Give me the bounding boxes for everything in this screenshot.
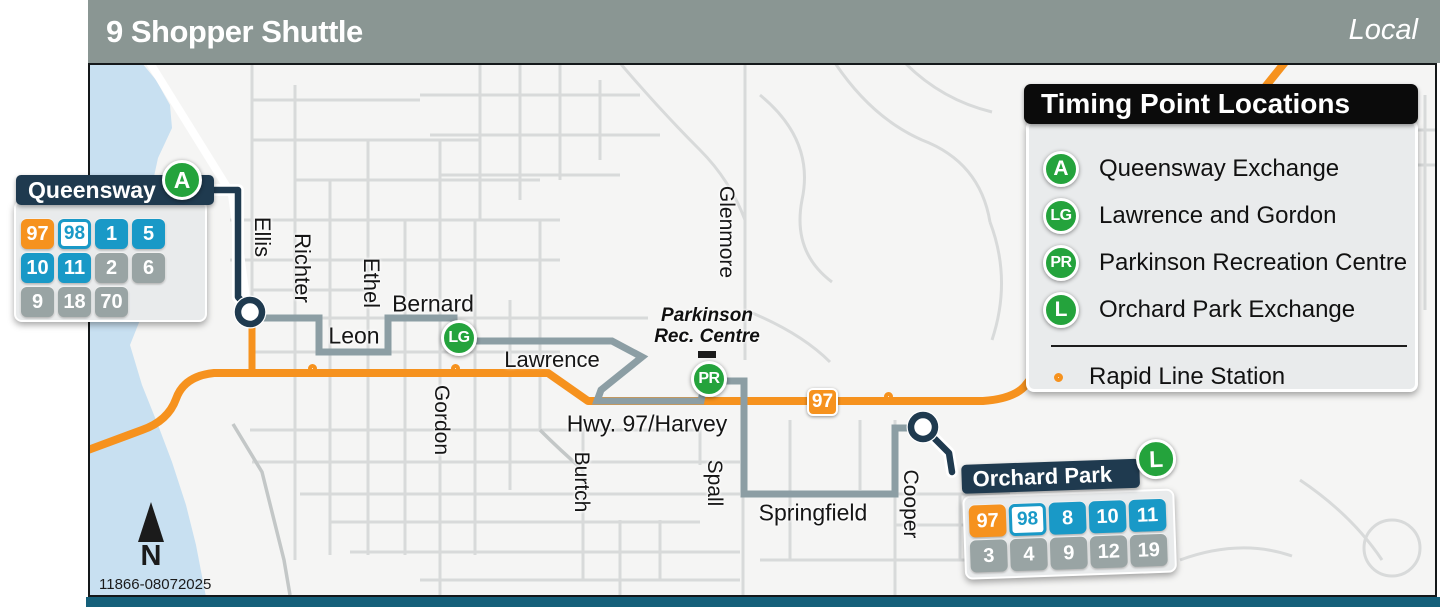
route-badge-98: 98 <box>1009 503 1047 536</box>
queensway-badge-grid: 97981510112691870 <box>21 207 200 317</box>
north-label: N <box>125 543 177 569</box>
route-badge-19: 19 <box>1130 534 1168 567</box>
timing-point-lg-badge: LG <box>1043 198 1079 234</box>
legend-item: AQueensway Exchange <box>1043 145 1415 192</box>
route-badge-12: 12 <box>1090 535 1128 568</box>
legend-item-label: Orchard Park Exchange <box>1099 296 1355 324</box>
orchard-title: Orchard Park <box>972 461 1112 492</box>
route-badge-row: 91870 <box>21 287 200 317</box>
route-title: 9 Shopper Shuttle <box>106 14 363 50</box>
legend-panel: AQueensway ExchangeLGLawrence and Gordon… <box>1026 120 1418 392</box>
route-badge-2: 2 <box>95 253 128 283</box>
route-badge-98: 98 <box>58 219 91 249</box>
route-badge-10: 10 <box>1089 500 1127 533</box>
timing-point-a-badge: A <box>162 160 202 200</box>
header: 9 Shopper Shuttle Local <box>88 0 1440 63</box>
legend-item-label: Parkinson Recreation Centre <box>1099 249 1407 277</box>
timing-point-l-badge: L <box>1043 292 1079 328</box>
orchard-park-callout: 9798810113491219 Orchard Park L <box>956 444 1191 587</box>
route-badge-9: 9 <box>21 287 54 317</box>
route-badge-row: 979815 <box>21 219 200 249</box>
legend-items: AQueensway ExchangeLGLawrence and Gordon… <box>1043 145 1415 333</box>
route-badge-11: 11 <box>1128 499 1166 532</box>
route-badge-11: 11 <box>58 253 91 283</box>
queensway-badge-panel: 97981510112691870 <box>14 200 207 322</box>
route-badge-8: 8 <box>1049 502 1087 535</box>
legend-item-label: Lawrence and Gordon <box>1099 202 1337 230</box>
route-badge-5: 5 <box>132 219 165 249</box>
orchard-badge-grid: 9798810113491219 <box>968 495 1170 573</box>
route-badge-4: 4 <box>1010 538 1048 571</box>
route-badge-row: 3491219 <box>970 534 1171 573</box>
poi-building-marker <box>698 351 716 358</box>
orchard-terminus-circle <box>907 411 940 444</box>
orchard-badge-panel: 9798810113491219 <box>962 488 1177 579</box>
poi-parkinson-line2: Rec. Centre <box>654 326 760 347</box>
route-badge-9: 9 <box>1050 537 1088 570</box>
route-badge-row: 101126 <box>21 253 200 283</box>
poi-parkinson-label: Parkinson Rec. Centre <box>654 305 760 347</box>
transit-map-page: 9 Shopper Shuttle Local EllisRichterEthe… <box>0 0 1440 607</box>
route-badge-18: 18 <box>58 287 91 317</box>
rapid-line-station-swatch <box>1054 373 1063 382</box>
legend-title: Timing Point Locations <box>1041 88 1350 120</box>
route-badge-97: 97 <box>21 219 54 249</box>
route-badge-3: 3 <box>970 539 1008 572</box>
poi-parkinson-line1: Parkinson <box>654 305 760 326</box>
timing-point-pr-badge: PR <box>1043 245 1079 281</box>
timing-point-l-badge: L <box>1135 438 1176 479</box>
route-badge-10: 10 <box>21 253 54 283</box>
queensway-terminus-circle <box>234 296 267 329</box>
route-badge-97: 97 <box>969 504 1007 537</box>
route-badge-1: 1 <box>95 219 128 249</box>
legend-item: LOrchard Park Exchange <box>1043 286 1415 333</box>
orchard-title-bar: Orchard Park <box>961 459 1140 494</box>
bottom-accent-bar <box>86 597 1440 607</box>
rapid-line-station-label: Rapid Line Station <box>1089 363 1285 391</box>
route-badge-row: 979881011 <box>969 499 1170 538</box>
route-badge-70: 70 <box>95 287 128 317</box>
legend-item: LGLawrence and Gordon <box>1043 192 1415 239</box>
legend-item: PRParkinson Recreation Centre <box>1043 239 1415 286</box>
legend-title-bar: Timing Point Locations <box>1024 84 1418 124</box>
plate-number: 11866-08072025 <box>99 576 211 593</box>
timing-point-a-badge: A <box>1043 151 1079 187</box>
service-type-label: Local <box>1349 14 1418 47</box>
queensway-callout: 97981510112691870 Queensway A <box>14 160 229 330</box>
rapid-line-station-row: Rapid Line Station <box>1054 363 1415 391</box>
timing-point-legend: AQueensway ExchangeLGLawrence and Gordon… <box>1024 84 1420 396</box>
route-badge-6: 6 <box>132 253 165 283</box>
queensway-title: Queensway <box>28 177 156 204</box>
north-arrow: N <box>125 502 177 572</box>
hwy97-shield-badge: 97 <box>807 388 838 416</box>
legend-divider <box>1051 345 1407 347</box>
north-arrow-icon <box>138 502 164 542</box>
legend-item-label: Queensway Exchange <box>1099 155 1339 183</box>
